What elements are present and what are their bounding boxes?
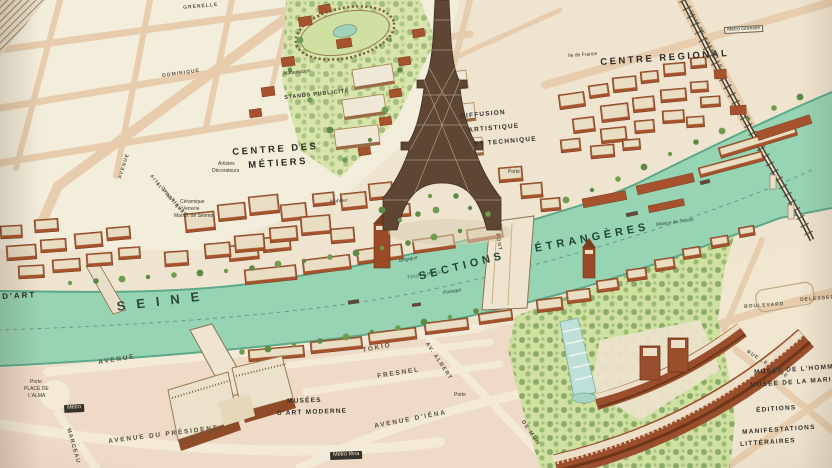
map-illustration: [0, 0, 832, 468]
paris-expo-pictorial-map: CENTRE DESMÉTIERSCENTRE REGIONALSEINESEC…: [0, 0, 832, 468]
